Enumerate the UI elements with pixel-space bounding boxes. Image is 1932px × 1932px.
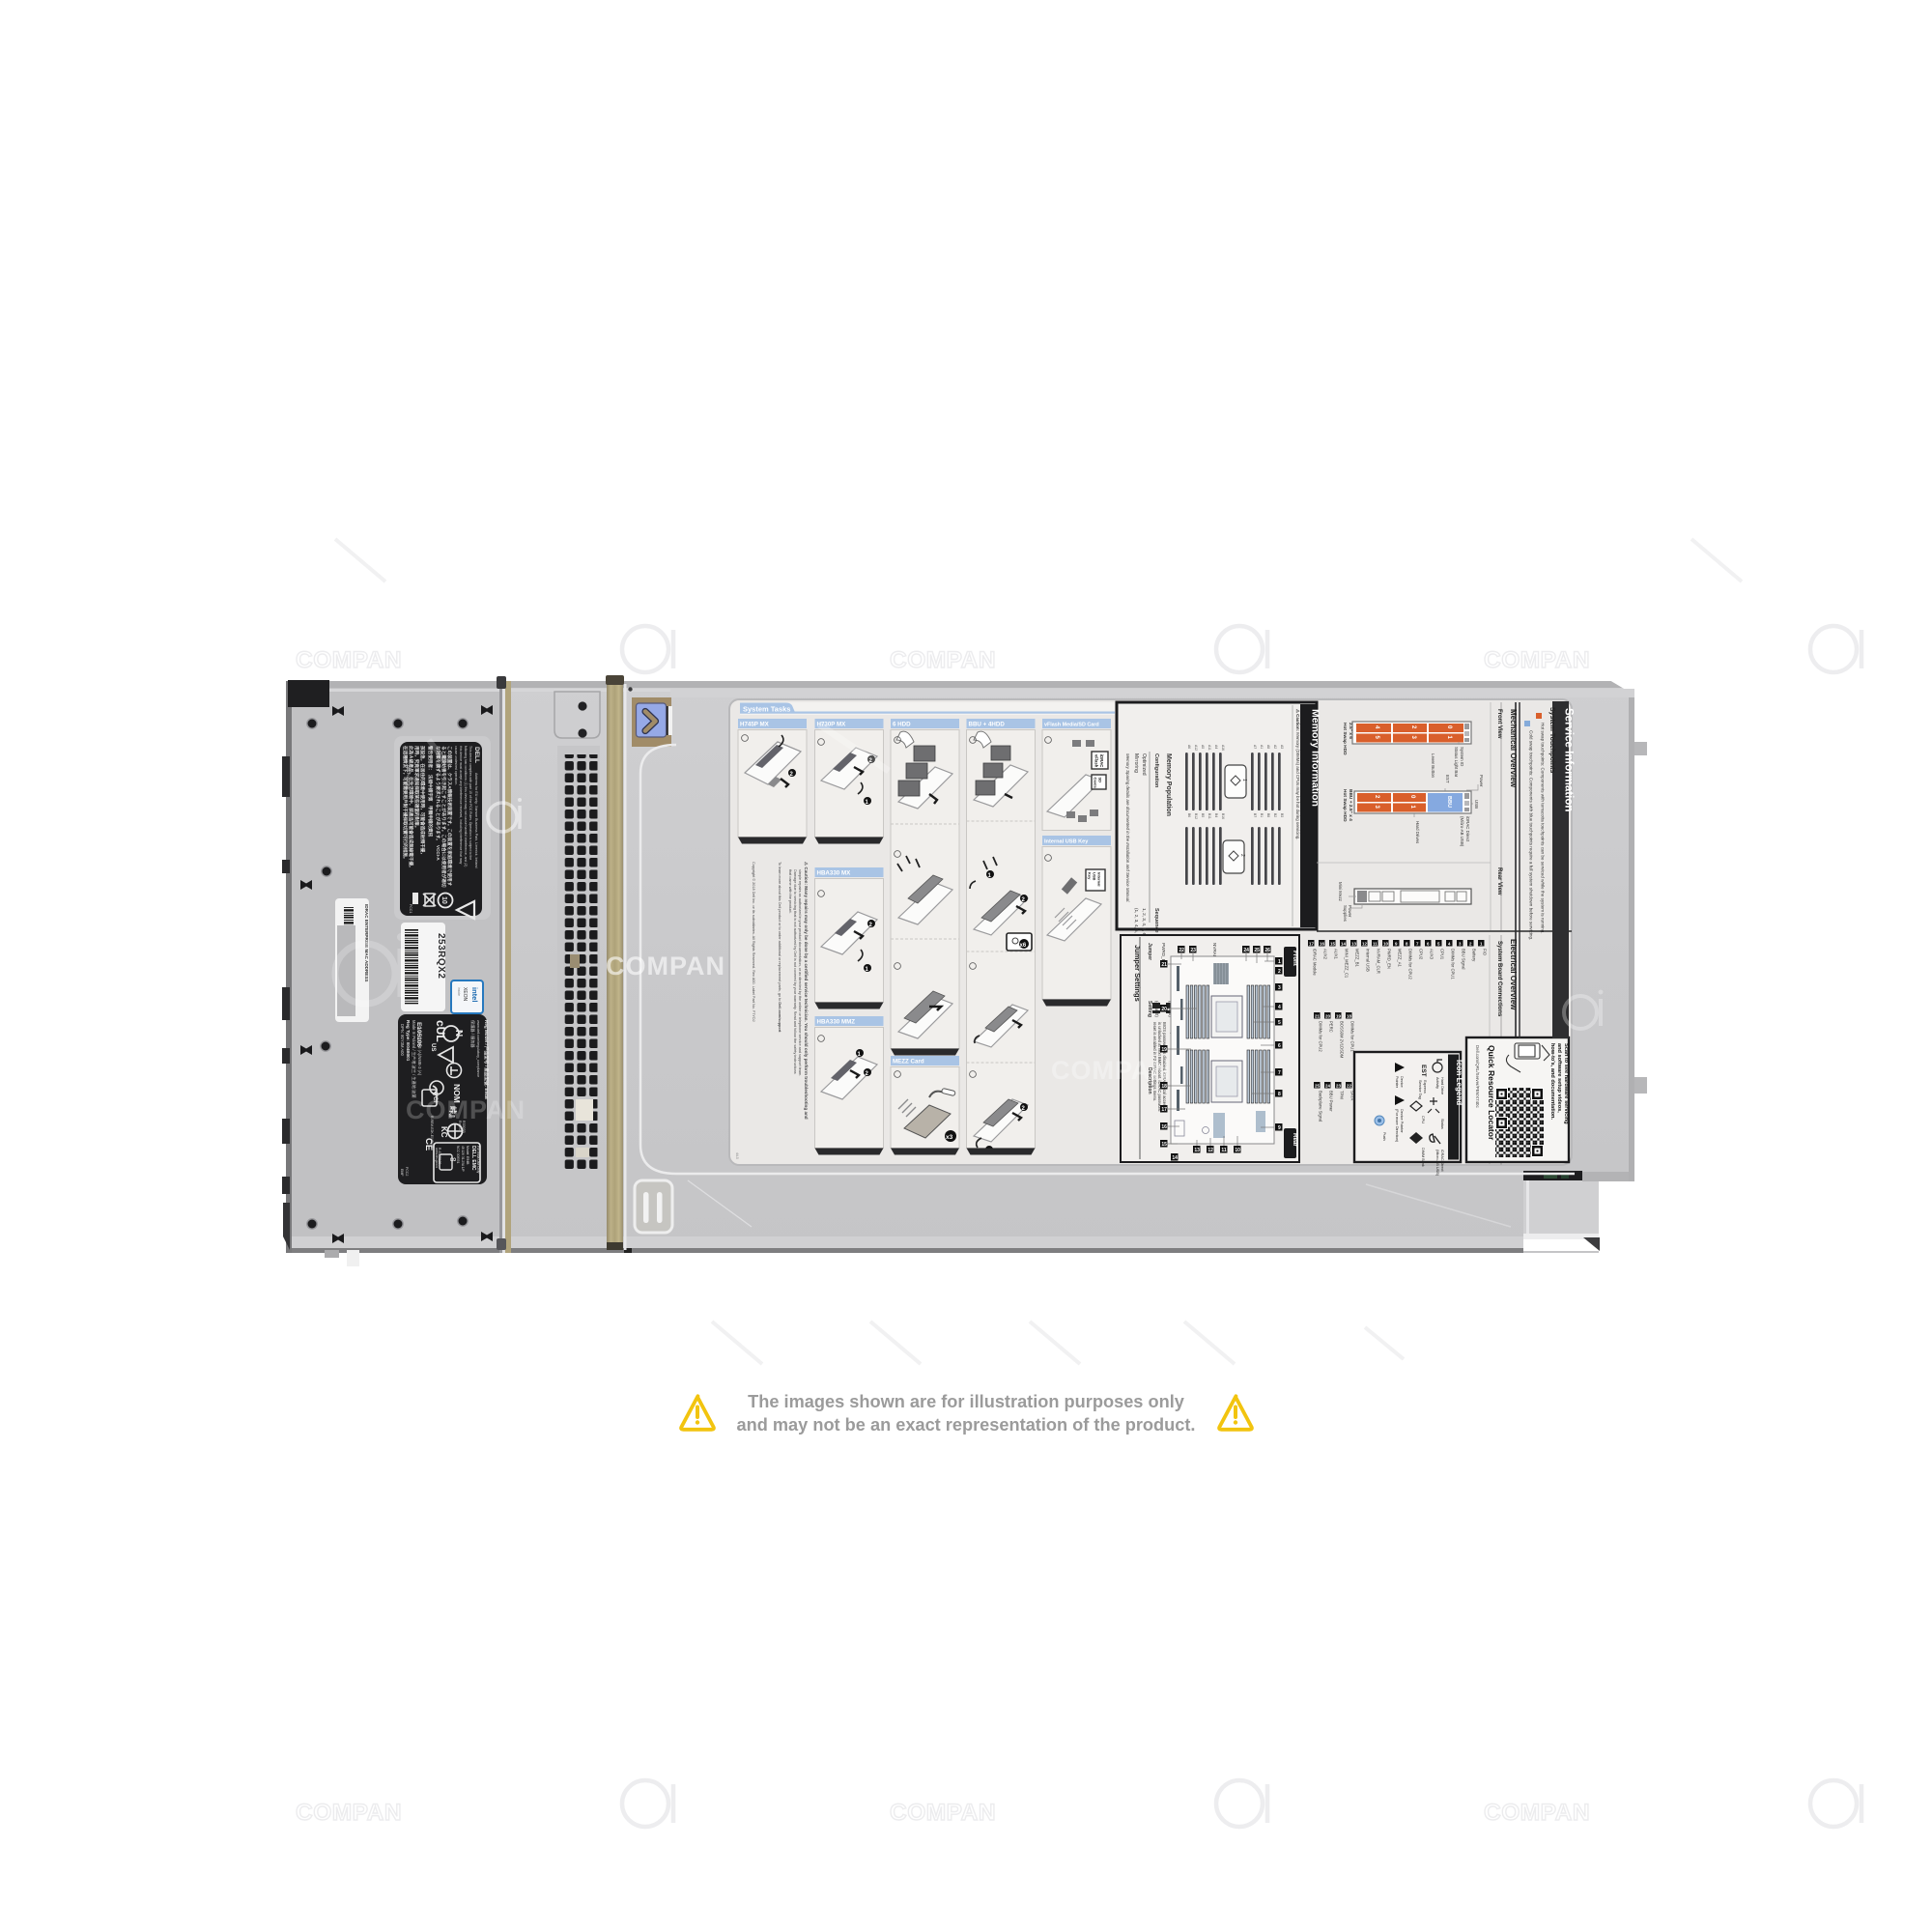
- svg-text:2: 2: [1278, 969, 1281, 975]
- svg-text:2: 2: [1239, 854, 1245, 857]
- svg-text:Configuration: Configuration: [1153, 753, 1159, 787]
- svg-text:EST: EST: [1420, 1065, 1427, 1077]
- svg-text:Setting: Setting: [1147, 1001, 1152, 1017]
- svg-text:MEZZ_A1: MEZZ_A1: [1398, 949, 1403, 968]
- svg-text:12: 12: [1362, 941, 1367, 946]
- svg-text:Rear: Rear: [1292, 1133, 1298, 1147]
- svg-text:10: 10: [1383, 941, 1388, 946]
- svg-text:Icon Legend: Icon Legend: [1455, 1060, 1463, 1105]
- svg-text:253RQX2: 253RQX2: [436, 933, 446, 979]
- svg-text:Cards: Cards: [1094, 778, 1098, 789]
- svg-text:DELL EMC: DELL EMC: [470, 1146, 476, 1171]
- svg-text:Jumper Settings: Jumper Settings: [1133, 945, 1142, 1002]
- svg-text:15: 15: [1161, 1142, 1167, 1148]
- svg-text:Express: Express: [1423, 1080, 1427, 1094]
- svg-text:CAN ICES-3 (A)/NMB-3 (A): CAN ICES-3 (A)/NMB-3 (A): [417, 1026, 422, 1076]
- svg-text:17: 17: [1161, 1107, 1167, 1113]
- svg-text:14: 14: [1172, 1155, 1178, 1161]
- svg-text:Mirroring: Mirroring: [1133, 753, 1139, 773]
- svg-text:Key: Key: [1088, 872, 1093, 880]
- svg-text:14: 14: [1341, 941, 1346, 946]
- svg-text:inside: inside: [457, 987, 461, 996]
- svg-text:18: 18: [1347, 1013, 1351, 1018]
- svg-text:A6: A6: [1187, 745, 1191, 749]
- svg-text:DIMMs for CPU2: DIMMs for CPU2: [1408, 949, 1413, 980]
- svg-text:NVRAM_CLR: NVRAM_CLR: [1377, 949, 1381, 974]
- svg-text:COMPAN: COMPAN: [296, 1800, 402, 1826]
- svg-text:BBU: BBU: [1446, 796, 1452, 808]
- svg-text:Dell.com/QRL/Server/PEMX740c: Dell.com/QRL/Server/PEMX740c: [1475, 1045, 1480, 1108]
- svg-text:B11: B11: [1207, 813, 1211, 819]
- svg-text:PWRD_EN: PWRD_EN: [1387, 949, 1392, 969]
- svg-text:iDRAC: iDRAC: [1099, 754, 1104, 767]
- svg-text:1: 1: [1241, 779, 1247, 781]
- svg-text:System Touchpoints: System Touchpoints: [1548, 707, 1555, 773]
- svg-text:Service Information: Service Information: [1563, 708, 1575, 811]
- svg-text:Status Light Bar: Status Light Bar: [1454, 747, 1459, 778]
- svg-text:19: 19: [1161, 1047, 1167, 1053]
- svg-text:B12: B12: [1194, 813, 1198, 819]
- svg-text:2.5" x 6: 2.5" x 6: [1348, 723, 1353, 739]
- svg-text:www.bis.gov.in: www.bis.gov.in: [435, 1148, 439, 1168]
- svg-text:5: 5: [1278, 1020, 1281, 1026]
- svg-text:B3: B3: [1280, 813, 1284, 817]
- svg-text:24: 24: [1325, 1083, 1330, 1088]
- svg-text:CPU2: CPU2: [1419, 949, 1424, 960]
- svg-text:17: 17: [1309, 941, 1314, 946]
- svg-text:B2: B2: [1273, 813, 1277, 817]
- svg-text:Status: Status: [1440, 1119, 1444, 1129]
- svg-text:Front: Front: [1292, 951, 1298, 966]
- svg-text:how-to's, and documentation.: how-to's, and documentation.: [1549, 1043, 1555, 1120]
- svg-text:Damage due to servicing that i: Damage due to servicing that is not auth…: [793, 869, 797, 1074]
- svg-text:16: 16: [1161, 1124, 1167, 1130]
- svg-text:Jumper: Jumper: [1147, 943, 1152, 960]
- svg-text:www.dell.com/regulatory_compli: www.dell.com/regulatory_compliance: [476, 1020, 480, 1077]
- svg-text:な対策を講ずるよう要求されることがあります。 VCCI-A: な対策を講ずるよう要求されることがあります。 VCCI-A: [435, 746, 441, 861]
- svg-text:B8: B8: [1266, 813, 1270, 817]
- svg-text:Reg Type: E04B001: Reg Type: E04B001: [406, 1020, 411, 1062]
- svg-text:AUX2: AUX2: [1323, 949, 1328, 960]
- svg-text:Electrical Overview: Electrical Overview: [1509, 939, 1518, 1010]
- svg-text:Lever Button: Lever Button: [1431, 753, 1435, 778]
- svg-text:CE: CE: [423, 1138, 434, 1151]
- svg-text:8: 8: [1278, 1092, 1281, 1097]
- svg-text:N: N: [453, 1030, 464, 1037]
- svg-text:MEZZ Card: MEZZ Card: [893, 1059, 924, 1065]
- svg-text:Device: Device: [1400, 1076, 1404, 1088]
- svg-text:Service Tag: Service Tag: [1418, 1080, 1422, 1099]
- svg-text:この装置は、クラスA情報技術装置です。この装置を家庭環境で使: この装置は、クラスA情報技術装置です。この装置を家庭環境で使用す: [446, 746, 453, 887]
- svg-text:⚠ Caution: Memory (DIMMs) and: ⚠ Caution: Memory (DIMMs) and CPUs may b…: [1295, 709, 1300, 839]
- svg-text:保護器 / 服务器: 保護器 / 服务器: [469, 1020, 476, 1048]
- svg-text:Optimized: Optimized: [1141, 753, 1147, 776]
- svg-text:COMPAN: COMPAN: [890, 1800, 996, 1826]
- svg-text:cause undesired operation.: cause undesired operation.: [454, 746, 458, 785]
- svg-text:Backplane Signal: Backplane Signal: [1319, 1091, 1323, 1122]
- svg-text:7: 7: [1278, 1070, 1281, 1076]
- svg-text:Hot swap touchpoints: Compone: Hot swap touchpoints: Components with te…: [1541, 723, 1546, 934]
- svg-text:9: 9: [1278, 1125, 1281, 1131]
- svg-text:23: 23: [1336, 1083, 1341, 1088]
- svg-text:Push: Push: [1382, 1132, 1386, 1141]
- svg-text:The images shown are for illus: The images shown are for illustration pu…: [748, 1392, 1185, 1411]
- svg-text:Copyright © 2018 Dell Inc. or: Copyright © 2018 Dell Inc. or its subsid…: [752, 862, 755, 1022]
- svg-text:A8: A8: [1266, 745, 1270, 749]
- svg-text:following two conditions: (1): following two conditions: (1) this devic…: [464, 746, 468, 867]
- svg-text:simple repairs as authorized i: simple repairs as authorized in your pro…: [798, 869, 802, 1076]
- svg-text:BOSS0M 2V1DSDM: BOSS0M 2V1DSDM: [1340, 1021, 1345, 1059]
- svg-text:DELL: DELL: [473, 747, 480, 763]
- svg-text:CPU: CPU: [1421, 1116, 1425, 1123]
- svg-text:US: US: [430, 1043, 436, 1051]
- svg-text:COMPAN: COMPAN: [606, 952, 725, 980]
- svg-text:(For more Direction): (For more Direction): [1395, 1109, 1399, 1143]
- svg-text:COMPAN: COMPAN: [406, 1095, 526, 1124]
- svg-text:(Micro-AB USB): (Micro-AB USB): [1435, 1150, 1439, 1177]
- svg-text:Pointer: Pointer: [1395, 1076, 1399, 1089]
- svg-text:B4: B4: [1214, 813, 1218, 817]
- svg-text:Hot Swap HDD: Hot Swap HDD: [1342, 789, 1348, 822]
- svg-text:20: 20: [1325, 1013, 1330, 1018]
- svg-text:vFlash Media/SD Card: vFlash Media/SD Card: [1044, 723, 1099, 728]
- svg-text:CPU1: CPU1: [1440, 949, 1445, 960]
- svg-text:25: 25: [1315, 1083, 1320, 1088]
- svg-text:Scan to see hardware servicing: Scan to see hardware servicing: [1563, 1043, 1569, 1124]
- svg-text:System Board Connections: System Board Connections: [1496, 941, 1502, 1017]
- svg-text:System Tasks: System Tasks: [743, 705, 790, 714]
- svg-text:A7: A7: [1253, 745, 1257, 749]
- svg-text:BBU + 2.5" x 4: BBU + 2.5" x 4: [1348, 789, 1353, 821]
- svg-text:Activity: Activity: [1435, 1077, 1439, 1089]
- svg-text:3: 3: [1278, 985, 1281, 991]
- svg-text:A5: A5: [1201, 745, 1205, 749]
- svg-text:DPN P06V3 A00: DPN P06V3 A00: [406, 765, 410, 789]
- svg-text:警告使用者： 法規中請字第 甲類申請的資訊: 警告使用者： 法規中請字第 甲類申請的資訊: [427, 746, 434, 838]
- svg-text:FCC2: FCC2: [405, 1167, 409, 1176]
- svg-text:Hot Swap HDD: Hot Swap HDD: [1342, 723, 1348, 755]
- svg-text:KC: KC: [440, 1126, 448, 1138]
- svg-text:B5: B5: [1201, 813, 1205, 817]
- svg-text:DPN: 80Y3M A00: DPN: 80Y3M A00: [400, 1024, 405, 1056]
- svg-text:XEON: XEON: [462, 987, 468, 1002]
- svg-text:PERC: PERC: [1329, 1021, 1334, 1033]
- svg-text:44-5: 44-5: [735, 1152, 739, 1159]
- svg-text:USB: USB: [1474, 800, 1479, 809]
- svg-text:Supplies: Supplies: [1343, 905, 1348, 923]
- svg-text:DIMMs for CPU1: DIMMs for CPU1: [1451, 949, 1456, 980]
- svg-text:4: 4: [1278, 1005, 1281, 1010]
- svg-text:BBU + 4HDD: BBU + 4HDD: [969, 722, 1006, 728]
- svg-text:and may not be an exact repres: and may not be an exact representation o…: [737, 1415, 1196, 1435]
- svg-text:13: 13: [1194, 1148, 1200, 1153]
- svg-text:System ID: System ID: [1460, 747, 1464, 766]
- svg-text:12: 12: [1207, 1148, 1213, 1153]
- svg-text:MINI_MEZZ_C1: MINI_MEZZ_C1: [1345, 949, 1350, 979]
- svg-text:⚠ Caution: Many repairs may o: ⚠ Caution: Many repairs may only be done…: [804, 862, 809, 1120]
- svg-text:Memory Sparing details are doc: Memory Sparing details are documented in…: [1125, 753, 1130, 903]
- svg-text:Reg Model / 产品型号 / 產品型號: E94B: Reg Model / 产品型号 / 產品型號: E94B: [483, 1020, 490, 1100]
- svg-text:Internal USB: Internal USB: [1366, 949, 1371, 972]
- svg-text:A1: A1: [1260, 745, 1264, 749]
- svg-text:COMPAN: COMPAN: [1051, 1056, 1171, 1085]
- svg-text:16: 16: [1320, 941, 1324, 946]
- svg-text:COMPAN: COMPAN: [1484, 647, 1590, 673]
- svg-text:This device complies with part: This device complies with part 15 of the…: [469, 746, 472, 860]
- svg-text:x6: x6: [1020, 943, 1027, 949]
- svg-text:19: 19: [1336, 1013, 1341, 1018]
- svg-text:EMF: EMF: [400, 1169, 404, 1177]
- svg-text:21: 21: [1161, 962, 1167, 968]
- svg-text:COMPAN: COMPAN: [296, 647, 402, 673]
- svg-text:Cold swap touchpoints: Compon: Cold swap touchpoints: Components with b…: [1529, 730, 1534, 940]
- svg-text:cUL: cUL: [434, 1020, 447, 1042]
- svg-text:To learn more about this Dell: To learn more about this Dell product or…: [778, 862, 781, 1033]
- svg-text:Memory Information: Memory Information: [1310, 709, 1321, 807]
- svg-text:iDRAC Direct: iDRAC Direct: [1440, 1150, 1444, 1173]
- svg-text:AUX3: AUX3: [1430, 949, 1435, 960]
- svg-text:iDRAC Module: iDRAC Module: [1313, 949, 1318, 976]
- svg-text:this device must accept any in: this device must accept any interference…: [459, 746, 463, 865]
- svg-text:x3: x3: [946, 1134, 953, 1141]
- svg-text:11: 11: [1373, 941, 1378, 946]
- svg-text:Memory Population: Memory Population: [1165, 753, 1172, 816]
- svg-text:iDRAC Direct: iDRAC Direct: [1465, 816, 1470, 842]
- svg-text:BBU Power: BBU Power: [1329, 1091, 1334, 1112]
- svg-text:vFlash: vFlash: [1094, 754, 1099, 768]
- svg-text:11: 11: [1221, 1148, 1227, 1153]
- svg-text:A16: A16: [1221, 745, 1225, 751]
- svg-text:FCC1: FCC1: [409, 904, 412, 913]
- svg-text:intel: intel: [470, 987, 479, 1002]
- svg-text:B16: B16: [1221, 813, 1225, 819]
- svg-text:A4: A4: [1214, 745, 1218, 749]
- svg-text:Rear View: Rear View: [1496, 867, 1502, 895]
- svg-text:MEZZ_B1: MEZZ_B1: [1355, 949, 1360, 968]
- svg-text:Battery: Battery: [1472, 949, 1477, 962]
- svg-text:and software setup videos,: and software setup videos,: [1556, 1043, 1562, 1113]
- svg-text:BBU Signal: BBU Signal: [1462, 949, 1466, 969]
- svg-text:A3: A3: [1280, 745, 1284, 749]
- svg-text:10: 10: [440, 896, 447, 904]
- svg-text:A11: A11: [1207, 745, 1211, 751]
- svg-text:孩設急，在居住的環境中使用時，可能會造成射頻干擾，: 孩設急，在居住的環境中使用時，可能會造成射頻干擾，: [419, 746, 426, 857]
- svg-text:Hard Drives: Hard Drives: [1415, 821, 1420, 844]
- svg-text:Model: E94B: Model: E94B: [466, 1146, 469, 1165]
- svg-text:6 HDD: 6 HDD: [893, 722, 911, 728]
- svg-text:48 12V 31.25A 1/P: 48 12V 31.25A 1/P: [461, 1146, 465, 1172]
- svg-text:ると電波妨害を引き起こすことがあります。この場合には使用者が: ると電波妨害を引き起こすことがあります。この場合には使用者が適切: [440, 746, 447, 888]
- svg-text:B6: B6: [1187, 813, 1191, 817]
- svg-text:在這種情況下，可能需要用戶對干擾採取切實可行的措施。: 在這種情況下，可能需要用戶對干擾採取切實可行的措施。: [402, 746, 409, 861]
- svg-text:Quick Resource Locator: Quick Resource Locator: [1487, 1045, 1496, 1141]
- svg-text:A12: A12: [1194, 745, 1198, 751]
- svg-text:B7: B7: [1253, 813, 1257, 817]
- svg-text:HBA330 MMZ: HBA330 MMZ: [817, 1019, 856, 1026]
- svg-text:HBA330 MX: HBA330 MX: [817, 870, 852, 877]
- svg-text:6: 6: [1278, 1043, 1281, 1049]
- svg-text:A2: A2: [1273, 745, 1277, 749]
- svg-text:13: 13: [1351, 941, 1356, 946]
- svg-text:DIMMs for CPU1: DIMMs for CPU1: [1350, 1021, 1355, 1052]
- svg-text:DIMMs for CPU2: DIMMs for CPU2: [1319, 1021, 1323, 1052]
- svg-text:Mechanical Overview: Mechanical Overview: [1509, 709, 1518, 788]
- svg-text:that came with the product.: that came with the product.: [788, 869, 792, 914]
- svg-text:21: 21: [1315, 1013, 1320, 1018]
- svg-text:Address for EU only: Xanson Bu: Address for EU only: Xanson Business Par…: [474, 773, 478, 867]
- svg-text:Device Pointer: Device Pointer: [1400, 1109, 1404, 1133]
- svg-text:EST: EST: [1445, 775, 1450, 783]
- svg-text:1: 1: [1278, 959, 1281, 965]
- svg-text:TPM: TPM: [1340, 1091, 1345, 1099]
- svg-text:10: 10: [1235, 1148, 1240, 1153]
- svg-text:Power: Power: [1479, 775, 1484, 787]
- svg-text:FIO: FIO: [1483, 949, 1488, 956]
- svg-text:Mini Mezz: Mini Mezz: [1338, 882, 1343, 901]
- svg-text:Hard Drive: Hard Drive: [1440, 1077, 1444, 1094]
- svg-text:Internal USB Key: Internal USB Key: [1044, 839, 1089, 845]
- svg-text:Front View: Front View: [1496, 709, 1502, 739]
- svg-text:COMPAN: COMPAN: [1484, 1800, 1590, 1826]
- svg-text:用時，究竟軍求通知採取某些適當的對策。: 用時，究竟軍求通知採取某些適當的對策。: [413, 746, 420, 830]
- svg-text:H745P MX: H745P MX: [740, 722, 770, 728]
- svg-text:COMPAN: COMPAN: [890, 647, 996, 673]
- svg-text:22: 22: [1347, 1083, 1351, 1088]
- svg-text:(Micro-AB USB): (Micro-AB USB): [1460, 816, 1464, 847]
- svg-text:AUX1: AUX1: [1334, 949, 1339, 960]
- svg-text:Sequence: Sequence: [1153, 908, 1159, 932]
- svg-text:20: 20: [1161, 1007, 1167, 1012]
- svg-text:DIMM Bank: DIMM Bank: [1421, 1148, 1425, 1167]
- svg-text:B1: B1: [1260, 813, 1264, 817]
- svg-text:8: 8: [448, 1157, 457, 1162]
- svg-text:15: 15: [1330, 941, 1335, 946]
- svg-text:Made In Poland / 生产地:波兰 / 生產地:: Made In Poland / 生产地:波兰 / 生產地:波蘭: [411, 1020, 417, 1098]
